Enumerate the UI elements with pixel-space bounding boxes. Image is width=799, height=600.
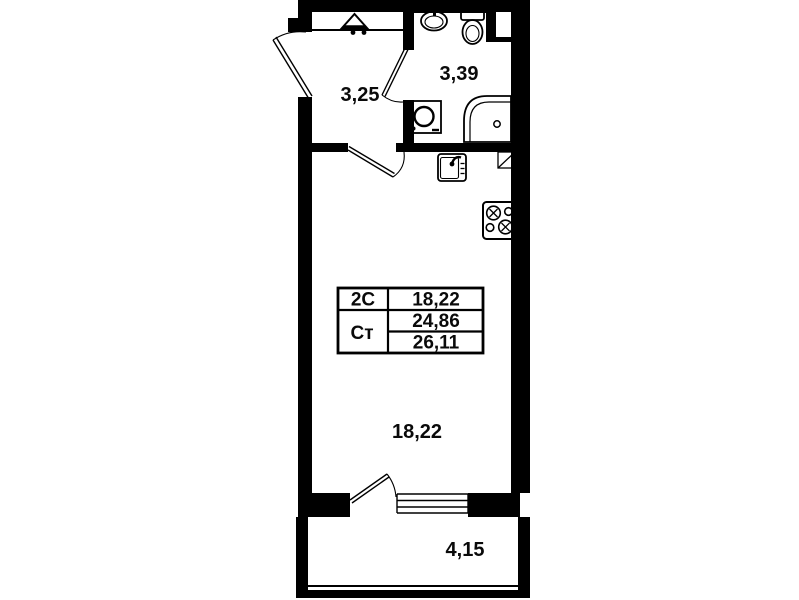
shower-icon xyxy=(464,96,511,142)
door-leaf xyxy=(349,147,395,174)
kitchen-sink-icon xyxy=(438,154,466,181)
entrance-door-leaf xyxy=(276,37,312,96)
table-studio-label: Ст xyxy=(350,323,373,344)
washing-machine-drum xyxy=(415,107,434,126)
living-room-area-label: 18,22 xyxy=(392,421,442,443)
stove-icon xyxy=(483,202,515,239)
walls xyxy=(288,0,530,598)
entrance-door xyxy=(273,32,312,99)
wall-right xyxy=(511,40,530,493)
washing-machine-knob xyxy=(412,127,416,131)
entrance-hinge-dot xyxy=(351,30,356,35)
balcony-wall-bottom xyxy=(296,590,530,598)
wall-bathroom-bottom xyxy=(396,143,513,152)
wall-left-step xyxy=(288,18,300,32)
hallway-room-door xyxy=(348,147,404,178)
floor-plan: 2С 18,22 Ст 24,86 26,11 3,25 3,39 18,22 … xyxy=(0,0,799,600)
toilet-bowl-inner xyxy=(466,26,479,42)
door-leaf xyxy=(350,474,387,500)
table-value-total-with-balcony: 26,11 xyxy=(413,333,460,354)
entrance-door-leaf xyxy=(273,40,309,99)
stove-burner-small xyxy=(486,224,494,232)
door-swing-arc xyxy=(393,152,404,177)
hallway-area-label: 3,25 xyxy=(341,84,380,106)
bathroom-area-label: 3,39 xyxy=(440,63,479,85)
bathroom-door xyxy=(382,48,408,102)
wall-left xyxy=(298,97,312,495)
duct-shaft-opening xyxy=(496,12,511,37)
shower-tray-rim xyxy=(470,102,511,142)
shower-tray xyxy=(464,96,511,142)
entrance-hinge-dot xyxy=(362,30,367,35)
wall-bottom-left-stub xyxy=(298,493,350,517)
entrance-door-swing-arc xyxy=(273,32,306,40)
wall-bath-divider-upper xyxy=(403,12,414,50)
window xyxy=(397,494,468,513)
kitchen-sink-basin xyxy=(441,158,459,179)
wall-bottom-right-stub xyxy=(468,493,520,517)
table-value-total: 24,86 xyxy=(412,311,460,332)
balcony-door xyxy=(350,474,396,503)
toilet-bowl xyxy=(463,20,483,44)
entrance-marker-icon xyxy=(342,14,367,35)
table-value-living: 18,22 xyxy=(412,290,460,311)
table-type-label: 2С xyxy=(351,290,376,311)
washbasin-inner xyxy=(425,16,443,28)
wall-hallway-bottom xyxy=(310,143,348,152)
balcony-area-label: 4,15 xyxy=(446,539,485,561)
door-leaf xyxy=(382,48,405,95)
door-leaf xyxy=(385,50,408,97)
floor-plan-page: 2С 18,22 Ст 24,86 26,11 3,25 3,39 18,22 … xyxy=(0,0,799,600)
shower-drain xyxy=(494,121,500,127)
area-table: 2С 18,22 Ст 24,86 26,11 xyxy=(338,288,483,354)
door-leaf xyxy=(352,477,389,503)
door-leaf xyxy=(348,150,393,177)
wall-top-hallway xyxy=(300,0,415,12)
balcony-wall-left xyxy=(296,517,308,598)
balcony-wall-right xyxy=(518,517,530,598)
